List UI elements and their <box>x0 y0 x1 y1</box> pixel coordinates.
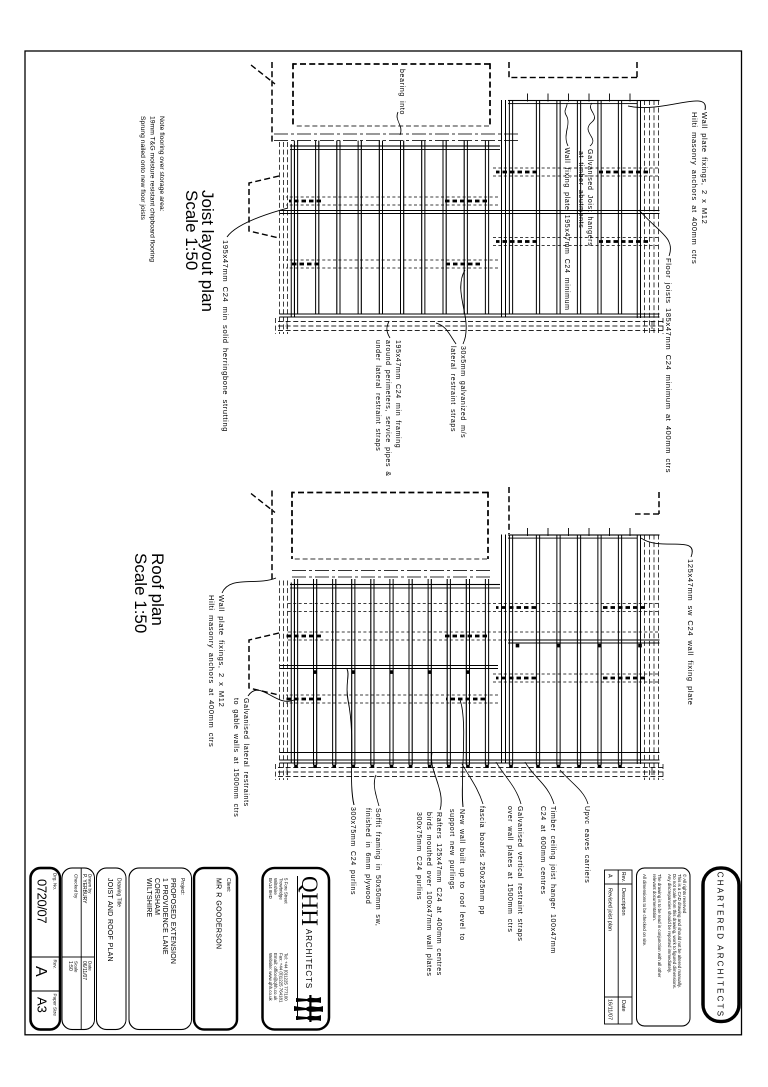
svg-text:Sprung nailed onto new floor j: Sprung nailed onto new floor joists <box>139 116 146 221</box>
svg-text:Rev.: Rev. <box>53 960 58 969</box>
svg-text:All dimensions to be checked o: All dimensions to be checked on site. <box>642 874 647 946</box>
svg-text:ARCHITECTS: ARCHITECTS <box>304 929 313 989</box>
svg-text:MR R GOODERSON: MR R GOODERSON <box>215 878 222 949</box>
svg-text:Rev.: Rev. <box>620 872 626 882</box>
svg-text:300x75mm C24 purlins: 300x75mm C24 purlins <box>349 807 356 895</box>
svg-text:125x47mm sw C24 wall fixing pl: 125x47mm sw C24 wall fixing plate <box>686 559 695 706</box>
svg-text:Drawn by: Drawn by <box>88 874 93 894</box>
svg-text:5 Fore Street: 5 Fore Street <box>284 878 289 904</box>
svg-text:Tel: +44 (0)1225 777100: Tel: +44 (0)1225 777100 <box>284 953 289 1001</box>
svg-text:300x75mm C24 purlins: 300x75mm C24 purlins <box>415 812 422 900</box>
svg-text:JOIST AND ROOF PLAN: JOIST AND ROOF PLAN <box>106 878 113 962</box>
svg-text:around perimeters, service pip: around perimeters, service pipes & <box>384 340 391 477</box>
svg-text:Email: office@qhh.co.uk: Email: office@qhh.co.uk <box>273 953 278 1001</box>
svg-text:QHH: QHH <box>297 876 322 926</box>
svg-text:Checked by: Checked by <box>74 874 79 899</box>
svg-text:at timber abutments: at timber abutments <box>577 151 584 228</box>
svg-text:relevant documentation.: relevant documentation. <box>652 874 657 921</box>
svg-text:Date: Date <box>620 1000 626 1012</box>
svg-text:Website: www.qhh.co.uk: Website: www.qhh.co.uk <box>268 953 273 1002</box>
svg-text:A3: A3 <box>35 997 50 1013</box>
svg-text:Hilti masonry anchors at 400mm: Hilti masonry anchors at 400mm ctrs <box>207 595 216 747</box>
svg-text:Roof plan: Roof plan <box>148 553 167 626</box>
svg-text:Wall fixing plate 195x47mm C24: Wall fixing plate 195x47mm C24 minimum <box>563 148 570 311</box>
svg-text:Scale: Scale <box>74 961 79 973</box>
svg-text:16/11/07: 16/11/07 <box>607 999 613 1020</box>
svg-text:BA14 8HD: BA14 8HD <box>268 878 273 899</box>
svg-text:The drawing is to be read in c: The drawing is to be read in conjunction… <box>657 874 662 978</box>
svg-text:Project:: Project: <box>179 878 185 895</box>
svg-text:Description: Description <box>620 888 626 916</box>
svg-text:over wall plates at 1500mm ctr: over wall plates at 1500mm ctrs <box>506 806 513 933</box>
svg-text:Hilti masonry anchors at 400mm: Hilti masonry anchors at 400mm ctrs <box>690 112 699 264</box>
svg-text:Trowbridge: Trowbridge <box>278 878 283 900</box>
svg-text:Wall plate fixings, 2 x M12: Wall plate fixings, 2 x M12 <box>700 112 709 224</box>
svg-text:195x47mm C24 min solid herring: 195x47mm C24 min solid herringbone strut… <box>221 240 230 432</box>
svg-text:30x5mm galvanized m/s: 30x5mm galvanized m/s <box>459 346 466 438</box>
svg-text:finished in 6mm plywood: finished in 6mm plywood <box>364 808 371 904</box>
svg-text:Client:: Client: <box>225 878 231 892</box>
svg-text:Galvanised lateral restraints: Galvanised lateral restraints <box>242 698 249 807</box>
svg-text:C24 at 600mm centres: C24 at 600mm centres <box>539 806 546 895</box>
svg-text:1 PROVIDENCE LANE: 1 PROVIDENCE LANE <box>161 878 168 955</box>
svg-text:A: A <box>32 966 49 977</box>
svg-text:Galvanised vertical restraint: Galvanised vertical restraint straps <box>516 806 523 942</box>
svg-text:Galvanised Joist hangers: Galvanised Joist hangers <box>586 149 593 246</box>
svg-text:Scale 1:50: Scale 1:50 <box>182 190 201 270</box>
svg-text:Note flooring over storage are: Note flooring over storage area: <box>158 116 165 212</box>
svg-text:support new purlings: support new purlings <box>448 809 455 890</box>
svg-text:Drg. No.: Drg. No. <box>53 873 58 890</box>
svg-text:to gable walls at 1500mm ctrs: to gable walls at 1500mm ctrs <box>232 698 239 817</box>
svg-text:New wall built up to roof leve: New wall built up to roof level to <box>458 809 465 941</box>
svg-text:06/11/07: 06/11/07 <box>81 961 87 980</box>
svg-text:Do not scale from this drawing: Do not scale from this drawing, work to … <box>672 874 677 989</box>
svg-text:Revised joist plan: Revised joist plan <box>607 888 613 931</box>
svg-text:© All rights reserved: © All rights reserved <box>682 874 687 914</box>
svg-text:P. YERBURY: P. YERBURY <box>81 874 87 904</box>
svg-text:fascia boards 250x25mm pp: fascia boards 250x25mm pp <box>478 806 485 915</box>
svg-text:This is a CAD drawing and shou: This is a CAD drawing and should not be … <box>677 874 682 988</box>
svg-text:Upvc eaves carriers: Upvc eaves carriers <box>583 806 590 883</box>
svg-text:195x47mm C24 min framing: 195x47mm C24 min framing <box>394 340 401 448</box>
svg-text:CHARTERED ARCHITECTS: CHARTERED ARCHITECTS <box>716 872 725 1019</box>
svg-text:Date: Date <box>88 961 93 971</box>
svg-text:19mm T&G moisture resistant ch: 19mm T&G moisture resistant chipboard fl… <box>149 116 156 262</box>
svg-text:bearing into: bearing into <box>398 69 405 115</box>
svg-text:lateral restraint straps: lateral restraint straps <box>449 346 456 432</box>
svg-text:1:50: 1:50 <box>67 961 73 971</box>
svg-text:Timber ceiling joist hanger 10: Timber ceiling joist hanger 100x47mm <box>549 806 556 954</box>
svg-text:Fax: +44 (0)1225 764181: Fax: +44 (0)1225 764181 <box>278 953 283 1003</box>
svg-text:0720/07: 0720/07 <box>35 879 50 923</box>
svg-text:CORSHAM: CORSHAM <box>153 878 160 915</box>
svg-text:Drawing Title: Drawing Title <box>116 878 122 907</box>
svg-text:Wiltshire: Wiltshire <box>273 878 278 895</box>
svg-text:Floor joists 185x47mm C24 mini: Floor joists 185x47mm C24 minimum at 400… <box>664 258 673 473</box>
svg-text:Paper Size: Paper Size <box>53 994 58 1017</box>
svg-text:Soffit framing in 50x50mm sw,: Soffit framing in 50x50mm sw, <box>374 808 381 927</box>
svg-text:Wall plate fixings, 2 x M12: Wall plate fixings, 2 x M12 <box>217 595 226 707</box>
svg-text:A: A <box>607 874 613 878</box>
svg-text:Any discrepancies should be re: Any discrepancies should be reported imm… <box>667 874 672 973</box>
svg-text:Rafters 125x47mm C24 at 400mm: Rafters 125x47mm C24 at 400mm centres <box>435 812 442 976</box>
svg-text:Scale 1:50: Scale 1:50 <box>131 553 150 633</box>
svg-text:birds mouthed over 100x47mm wa: birds mouthed over 100x47mm wall plates <box>425 812 432 976</box>
svg-text:under lateral restraint straps: under lateral restraint straps <box>374 340 381 451</box>
svg-text:PROPOSED EXTENSION: PROPOSED EXTENSION <box>169 878 176 964</box>
svg-text:WILTSHIRE: WILTSHIRE <box>145 878 152 918</box>
